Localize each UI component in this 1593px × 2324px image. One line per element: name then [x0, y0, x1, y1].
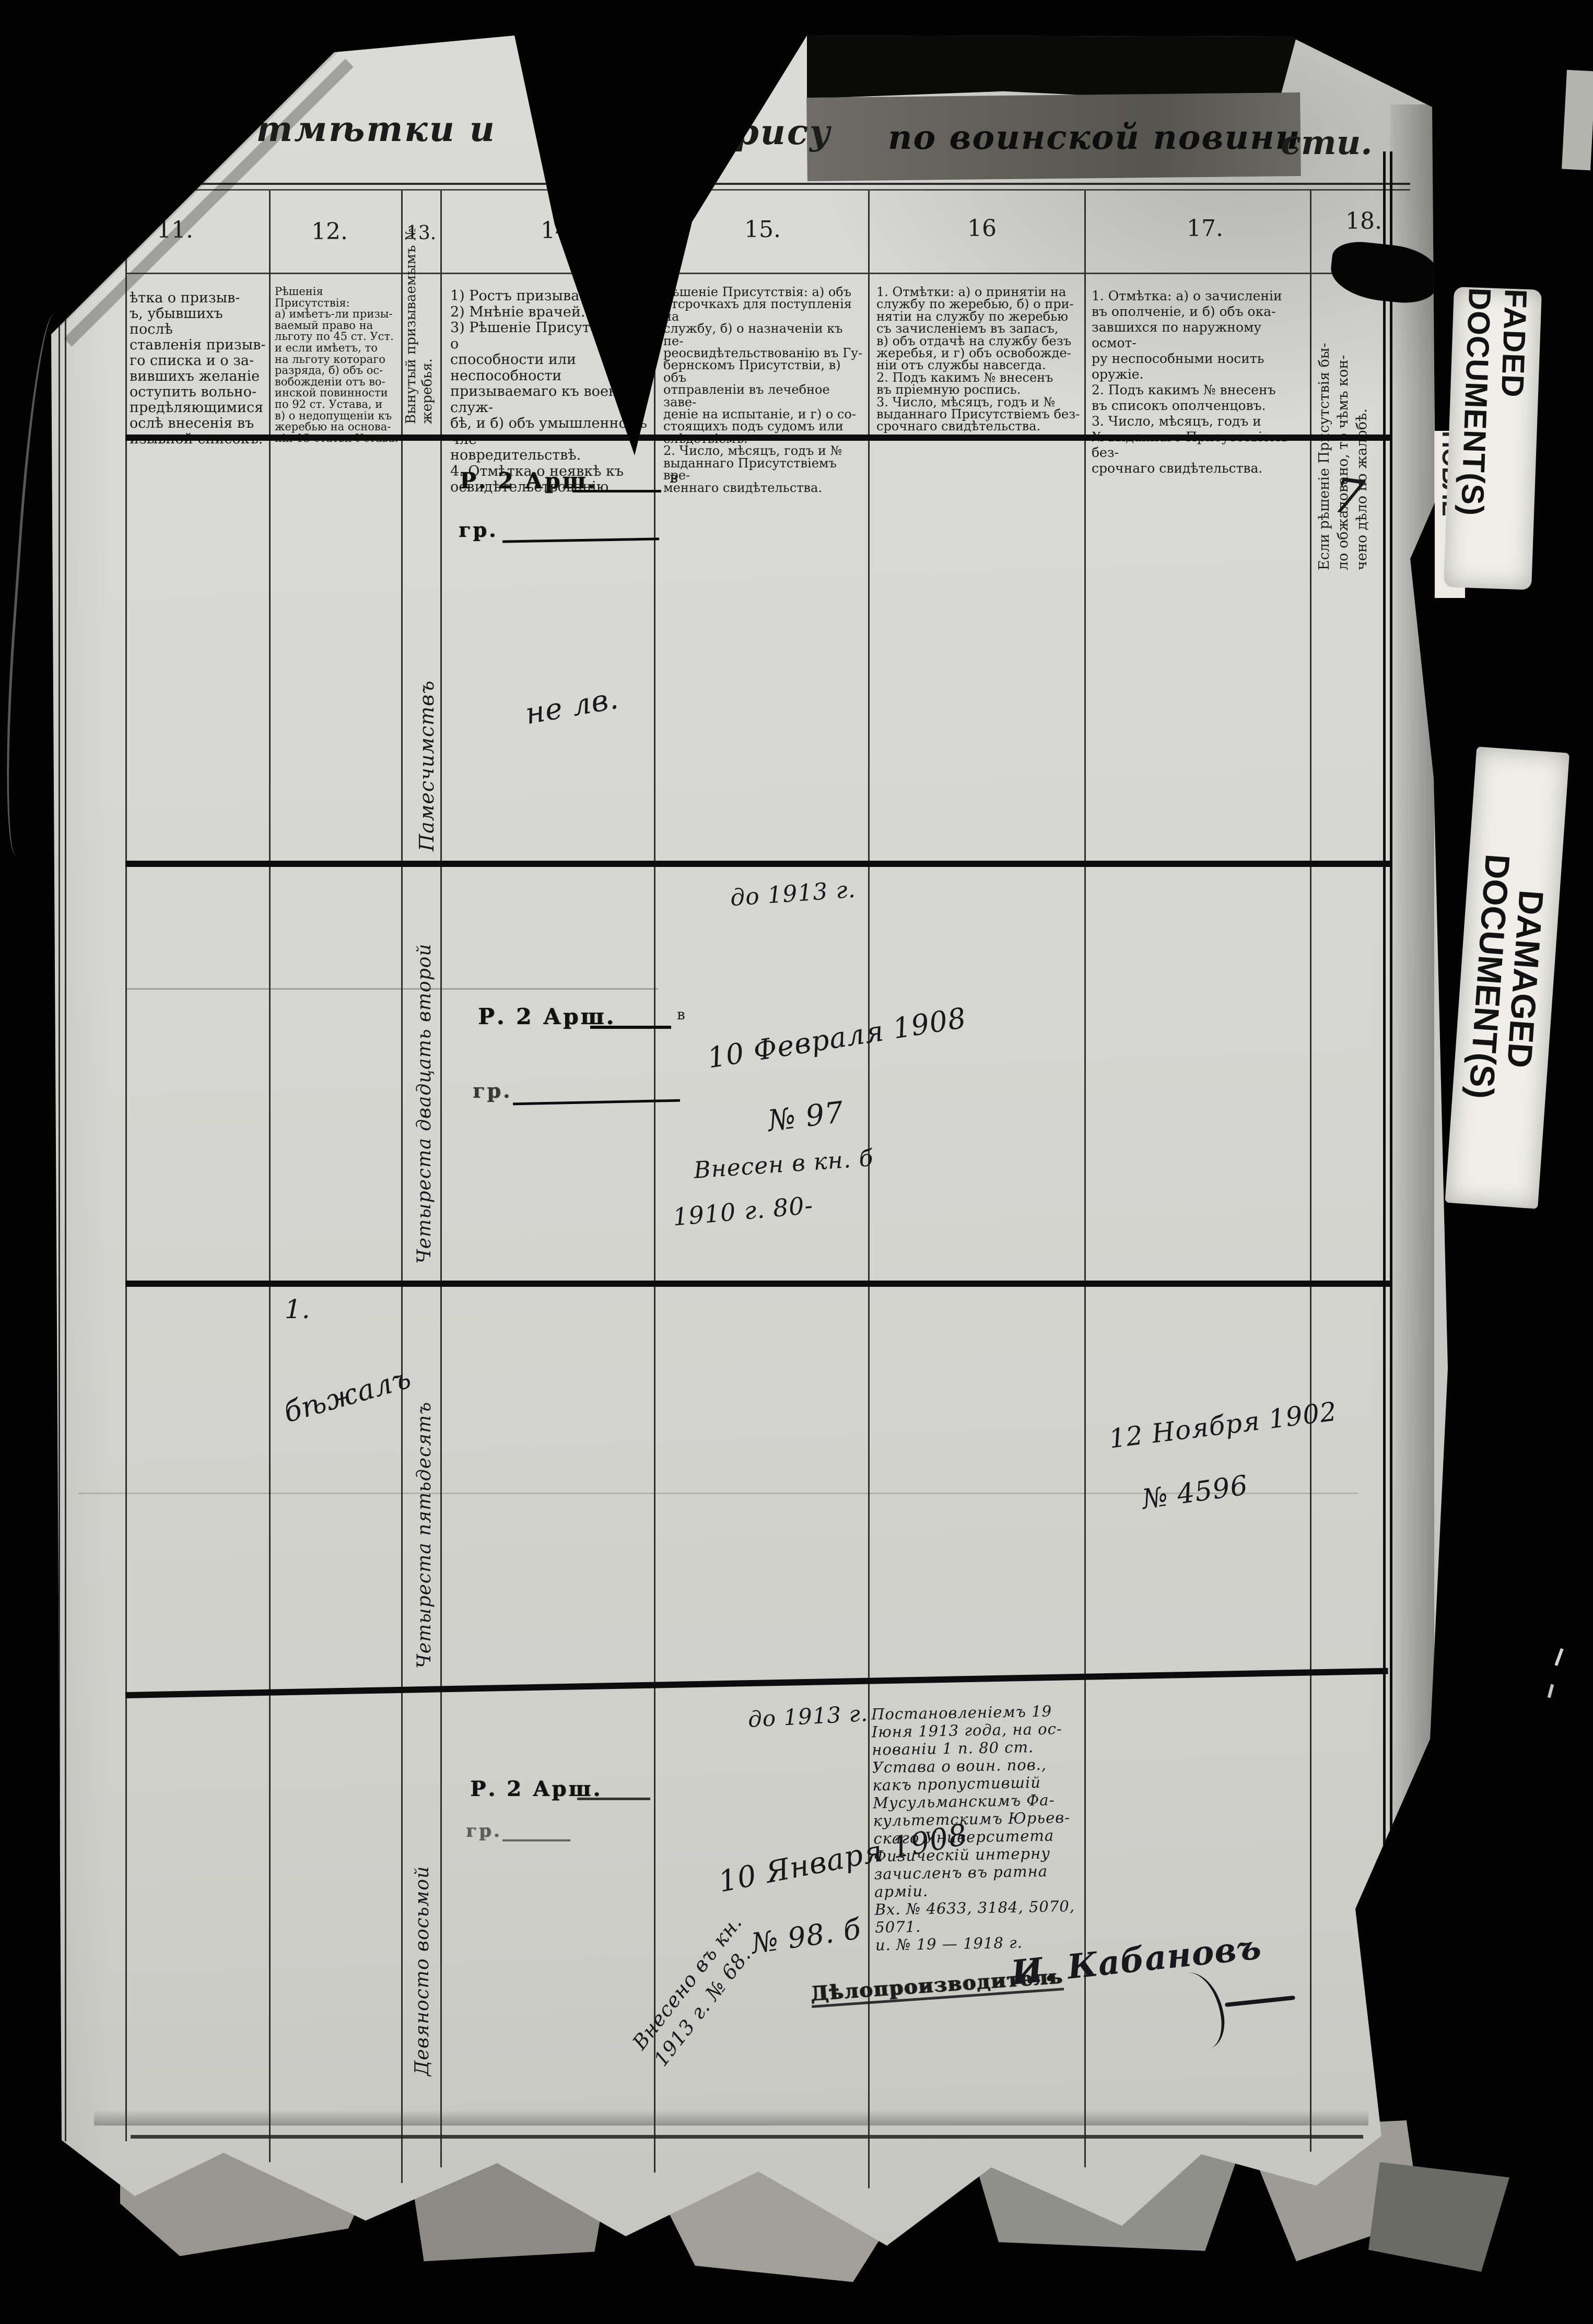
column-header-13: Вынутый призываемымъ № жеребья.: [403, 194, 436, 424]
stamp-rule: [502, 1839, 570, 1841]
hw-until-row2: до 1913 г.: [730, 876, 857, 912]
number-band-rule: [125, 273, 1410, 274]
hw-lot-number-row3: Четыреста пятьдесятъ: [414, 1324, 435, 1669]
right-fold-shade: [1390, 104, 1434, 2141]
paper-fragment: [1368, 2162, 1509, 2272]
gr-stamp-row1: гр.: [459, 518, 498, 542]
film-scratch: [1554, 1648, 1563, 1666]
hw-date-row3: 12 Ноября 1902: [1107, 1396, 1339, 1454]
page-title-segment: сти.: [1281, 123, 1373, 162]
grid-vline: [868, 191, 870, 2188]
column-number-18: 18.: [1345, 208, 1382, 234]
grid-vline: [125, 191, 127, 2141]
bottom-rule: [131, 2135, 1363, 2139]
hw-lot-number-row2: Четыреста двадцать второй: [414, 893, 435, 1264]
hw-number-row3: № 4596: [1140, 1470, 1250, 1516]
column-header-16: 1. Отмѣтки: а) о принятіи на службу по ж…: [876, 286, 1080, 433]
hw-note-row3: бѣжалъ: [280, 1361, 415, 1429]
hw-entered-row2: Внесен в кн. б: [693, 1145, 874, 1184]
column-header-17: 1. Отмѣтка: а) о зачисленіи въ ополченіе…: [1092, 288, 1306, 476]
grid-vline: [440, 191, 442, 2167]
signature-flourish: [1166, 1968, 1229, 2053]
page-title-segment: по воинской повинн: [888, 118, 1301, 157]
column-number-16: 16: [967, 215, 997, 242]
gr-stamp-row4: гр.: [466, 1821, 501, 1841]
crease-line: [125, 988, 658, 990]
column-number-17: 17.: [1187, 215, 1223, 242]
grid-vline: [1310, 191, 1311, 2152]
row-divider: [125, 1668, 1388, 1698]
left-edge-line: [58, 313, 60, 2141]
column-header-14: 1) Ростъ призываемаго. 2) Мнѣніе врачей.…: [450, 288, 651, 496]
document-paper: Отмѣтки и нія прису по воинской повинн с…: [0, 0, 1593, 2324]
grid-vline: [269, 191, 271, 2162]
grid-vline: [1084, 191, 1086, 2167]
hw-mark-row3: 1.: [285, 1294, 311, 1324]
title-rule: [131, 189, 1410, 191]
hw-note-row1: не лв.: [523, 682, 621, 731]
hw-entered2-row2: 1910 г. 80-: [672, 1191, 814, 1231]
stamp-rule: [572, 490, 661, 492]
hw-lot-number-row1: Памесчимствъ: [415, 632, 438, 851]
column-number-11: 11.: [157, 217, 193, 243]
stamp-rule: [590, 1026, 671, 1029]
title-rule: [131, 183, 1410, 185]
column-header-12: Рѣшенія Присутствія: а) имѣетъ-ли призы-…: [275, 286, 399, 444]
hw-date-row2: 10 Февраля 1908: [705, 1001, 968, 1075]
sticker-faded-document: FADED DOCUMENT(S): [1444, 287, 1542, 590]
scanned-page: Отмѣтки и нія прису по воинской повинн с…: [0, 0, 1593, 2324]
column-number-14: 14.: [541, 217, 577, 244]
hw-number-row2: № 97: [766, 1095, 846, 1138]
page-title-segment: нія прису: [624, 112, 831, 152]
hw-until-row4: до 1913 г.: [747, 1700, 869, 1732]
row-divider: [125, 1281, 1391, 1287]
fold-line: [1383, 151, 1386, 2146]
left-edge-line: [65, 313, 66, 2141]
height-suffix-row2: в: [677, 1006, 685, 1023]
paper-fragment: [1562, 70, 1593, 171]
sticker-faded-label: FADED DOCUMENT(S): [1451, 287, 1534, 590]
page-title-segment: Отмѣтки и: [225, 109, 496, 149]
hw-entered-diagonal-row4: Внесено въ кн. 1913 г. № 68.: [626, 1910, 769, 2072]
height-suffix-row1: в: [670, 469, 678, 486]
stamp-rule: [502, 537, 659, 543]
hw-resolution-row4: Постановленіемъ 19 Іюня 1913 года, на ос…: [871, 1702, 1084, 1954]
hw-lot-number-row4: Девяносто восьмой: [412, 1752, 433, 2076]
header-bottom-rule: [125, 435, 1391, 441]
fold-line: [1390, 151, 1392, 2146]
grid-vline: [401, 191, 403, 2183]
signature-dash: [1225, 1996, 1295, 2007]
stamp-rule: [577, 1798, 650, 1800]
bottom-crease-shadow: [94, 2110, 1368, 2126]
column-header-11: ѣтка о призыв- ъ, убывшихъ послѣ ставлен…: [130, 290, 270, 447]
hw-number-row4: № 98. б: [749, 1912, 863, 1961]
gr-stamp-row2: гр.: [473, 1079, 512, 1102]
column-number-15: 15.: [744, 216, 781, 243]
column-header-15: Рѣшеніе Присутствія: а) объ отсрочкахъ д…: [663, 286, 863, 494]
column-number-12: 12.: [311, 218, 348, 245]
sticker-damaged-document: DAMAGED DOCUMENT(S): [1445, 747, 1569, 1209]
film-scratch: [1548, 1684, 1554, 1698]
grid-vline: [654, 191, 655, 2173]
row-divider: [125, 861, 1391, 867]
